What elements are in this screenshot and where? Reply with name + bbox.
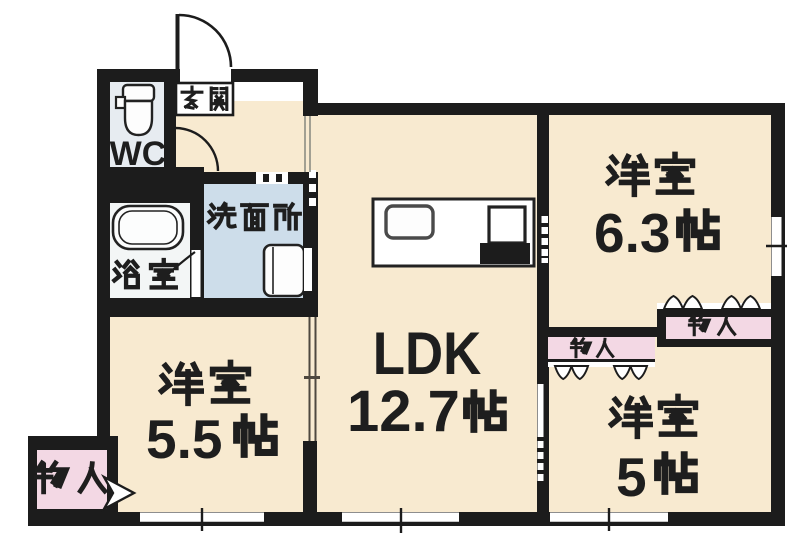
svg-text:12.7: 12.7 — [347, 379, 460, 444]
svg-text:5.5: 5.5 — [146, 408, 222, 470]
svg-text:WC: WC — [110, 135, 167, 173]
svg-text:5: 5 — [616, 446, 647, 508]
svg-text:6.3: 6.3 — [594, 202, 670, 264]
svg-text:LDK: LDK — [373, 320, 482, 387]
